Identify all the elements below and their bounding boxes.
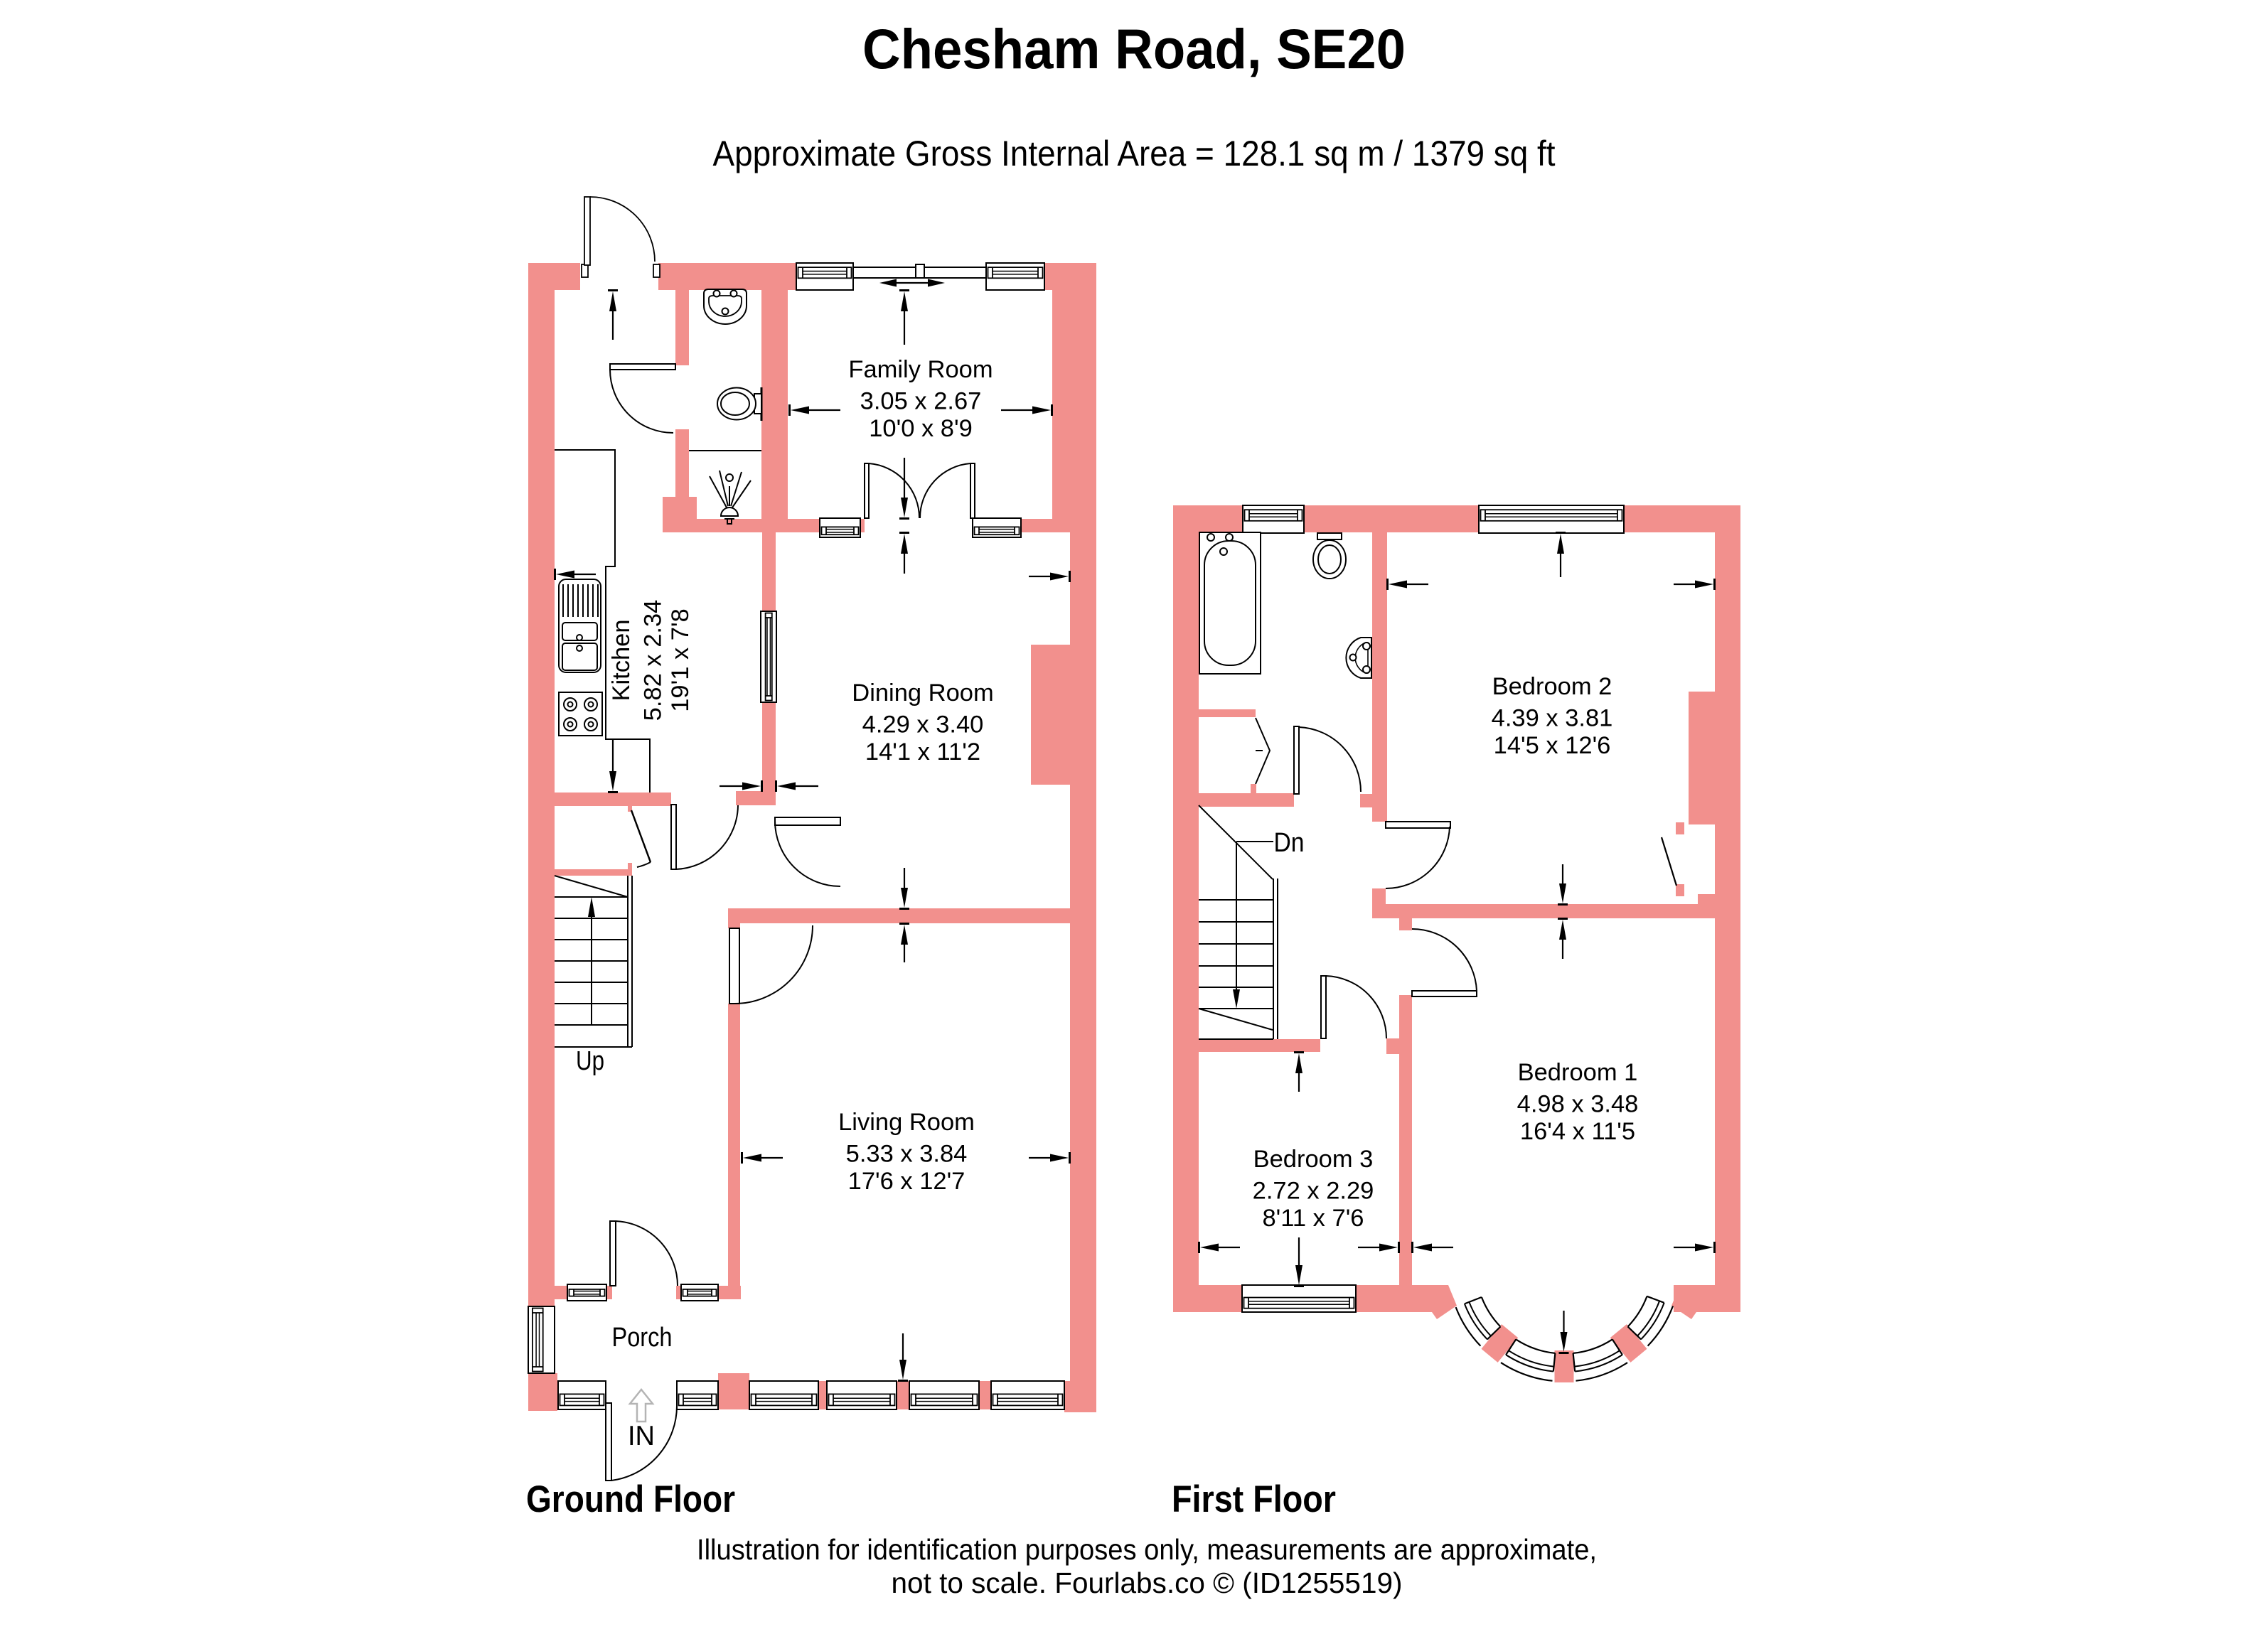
svg-text:19'1 x 7'8: 19'1 x 7'8	[667, 608, 694, 712]
svg-text:Bedroom 1: Bedroom 1	[1518, 1059, 1638, 1086]
svg-text:Living Room: Living Room	[838, 1109, 975, 1136]
svg-text:5.82 x 2.34: 5.82 x 2.34	[640, 600, 667, 721]
svg-text:3.05 x 2.67: 3.05 x 2.67	[860, 388, 982, 415]
svg-text:14'5 x 12'6: 14'5 x 12'6	[1494, 732, 1611, 759]
svg-text:Up: Up	[576, 1046, 604, 1076]
svg-text:Dn: Dn	[1274, 828, 1305, 858]
svg-text:10'0 x 8'9: 10'0 x 8'9	[869, 415, 973, 442]
svg-text:IN: IN	[628, 1421, 655, 1451]
svg-text:Ground Floor: Ground Floor	[526, 1478, 735, 1520]
svg-text:14'1 x 11'2: 14'1 x 11'2	[865, 738, 980, 765]
svg-text:Family Room: Family Room	[848, 356, 993, 383]
svg-text:First Floor: First Floor	[1172, 1478, 1336, 1520]
svg-text:8'11 x 7'6: 8'11 x 7'6	[1263, 1205, 1364, 1232]
svg-text:Bedroom 2: Bedroom 2	[1492, 673, 1612, 700]
svg-text:Kitchen: Kitchen	[608, 619, 635, 701]
svg-text:Porch: Porch	[612, 1323, 673, 1353]
svg-text:Chesham Road, SE20: Chesham Road, SE20	[862, 17, 1406, 80]
svg-text:17'6 x 12'7: 17'6 x 12'7	[848, 1168, 965, 1195]
svg-text:4.98 x 3.48: 4.98 x 3.48	[1517, 1091, 1639, 1118]
svg-text:4.39 x 3.81: 4.39 x 3.81	[1492, 705, 1613, 732]
svg-text:Illustration for identificatio: Illustration for identification purposes…	[697, 1533, 1597, 1566]
svg-text:5.33 x 3.84: 5.33 x 3.84	[846, 1141, 968, 1168]
svg-text:2.72 x 2.29: 2.72 x 2.29	[1253, 1178, 1374, 1205]
svg-text:4.29 x 3.40: 4.29 x 3.40	[862, 711, 984, 738]
svg-text:16'4 x 11'5: 16'4 x 11'5	[1520, 1118, 1635, 1145]
svg-text:Dining Room: Dining Room	[852, 679, 993, 707]
svg-text:Approximate Gross Internal Are: Approximate Gross Internal Area = 128.1 …	[713, 134, 1556, 173]
svg-text:Bedroom 3: Bedroom 3	[1253, 1146, 1374, 1173]
svg-text:not to scale. Fourlabs.co © (I: not to scale. Fourlabs.co © (ID1255519)	[892, 1567, 1403, 1599]
